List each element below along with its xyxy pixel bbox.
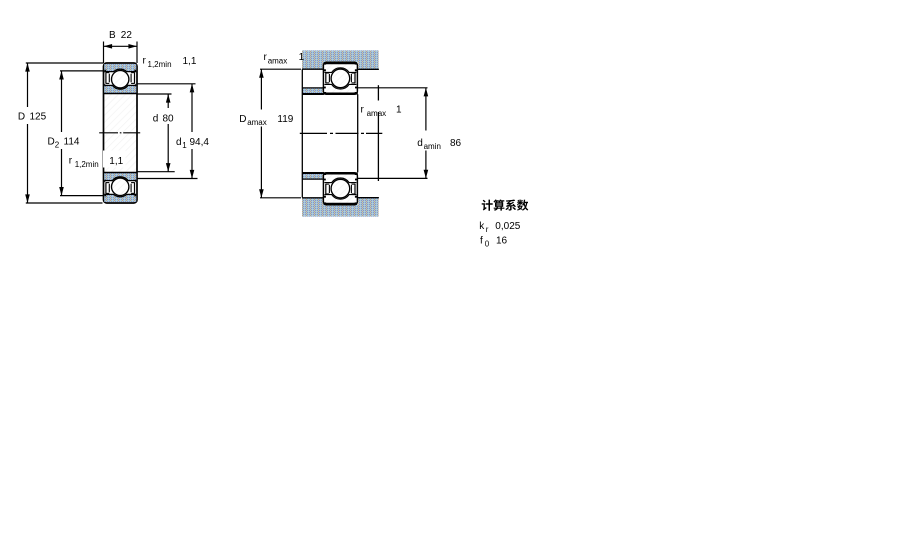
svg-text:amax: amax [367,109,387,118]
svg-text:1: 1 [396,105,402,116]
svg-text:94,4: 94,4 [190,137,210,148]
svg-text:16: 16 [496,236,508,247]
svg-text:amax: amax [268,57,288,66]
svg-text:D: D [239,114,246,125]
svg-text:d: d [176,137,182,148]
svg-text:d: d [417,138,423,149]
svg-text:2: 2 [55,141,60,150]
svg-text:1: 1 [299,52,305,63]
svg-text:D: D [18,111,25,122]
svg-text:86: 86 [450,138,462,149]
svg-text:1,2min: 1,2min [148,60,172,69]
svg-text:B: B [109,30,116,41]
svg-text:1,1: 1,1 [183,56,197,67]
svg-text:0: 0 [485,239,490,248]
svg-text:amin: amin [424,142,441,151]
svg-text:0,025: 0,025 [495,221,520,232]
svg-text:80: 80 [163,114,175,125]
svg-text:1,2min: 1,2min [75,160,99,169]
svg-text:114: 114 [64,137,80,148]
svg-text:r: r [486,225,489,234]
svg-text:1: 1 [182,141,187,150]
svg-text:amax: amax [247,118,267,127]
svg-text:1,1: 1,1 [109,156,123,167]
svg-text:119: 119 [277,114,293,125]
svg-text:125: 125 [30,111,47,122]
svg-text:d: d [153,114,159,125]
svg-text:D: D [48,137,55,148]
svg-text:f: f [480,236,483,247]
svg-text:22: 22 [121,30,133,41]
